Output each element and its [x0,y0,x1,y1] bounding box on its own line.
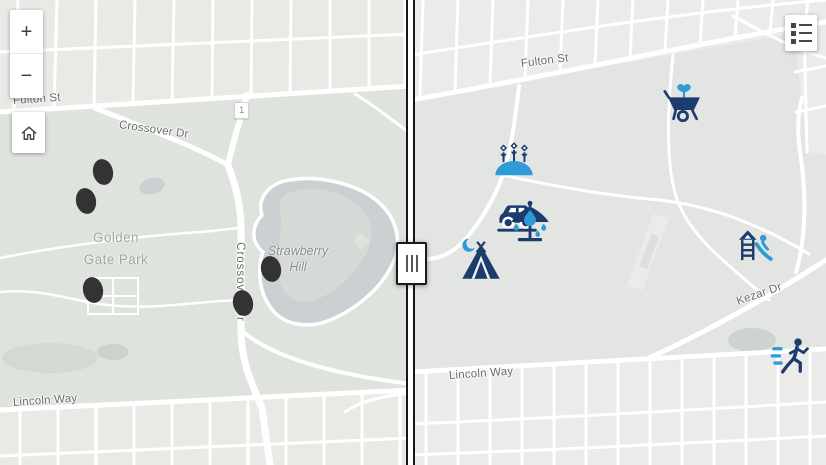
hill-line2: Hill [289,260,306,274]
map-left[interactable]: Fulton St Crossover Dr Crossover Dr Linc… [0,0,411,465]
hill-line1: Strawberry [268,244,328,258]
tent-icon[interactable] [459,238,503,282]
map-compare-app: Fulton St Crossover Dr Crossover Dr Linc… [0,0,826,465]
home-button[interactable] [12,112,45,153]
home-icon [19,123,39,143]
park-name-label: Golden Gate Park [60,227,172,272]
carousel-icon[interactable] [508,200,552,244]
map-right[interactable]: Fulton St Kezar Dr Lincoln Way [411,0,826,465]
runner-icon[interactable] [770,335,814,379]
swipe-divider[interactable] [406,0,415,465]
legend-button[interactable] [785,15,817,51]
route-shield: 1 [234,102,249,119]
zoom-in-button[interactable]: + [10,10,43,54]
garden-flowers-icon[interactable] [492,139,536,183]
zoom-control: + − [10,10,43,98]
park-name-line2: Gate Park [84,252,148,267]
swipe-handle[interactable] [396,242,427,285]
drag-handle-icon [406,255,408,272]
zoom-out-button[interactable]: − [10,54,43,98]
playground-slide-icon[interactable] [734,226,778,270]
wheelbarrow-icon[interactable] [662,82,706,126]
legend-icon [791,20,812,47]
park-name-line1: Golden [93,230,139,245]
